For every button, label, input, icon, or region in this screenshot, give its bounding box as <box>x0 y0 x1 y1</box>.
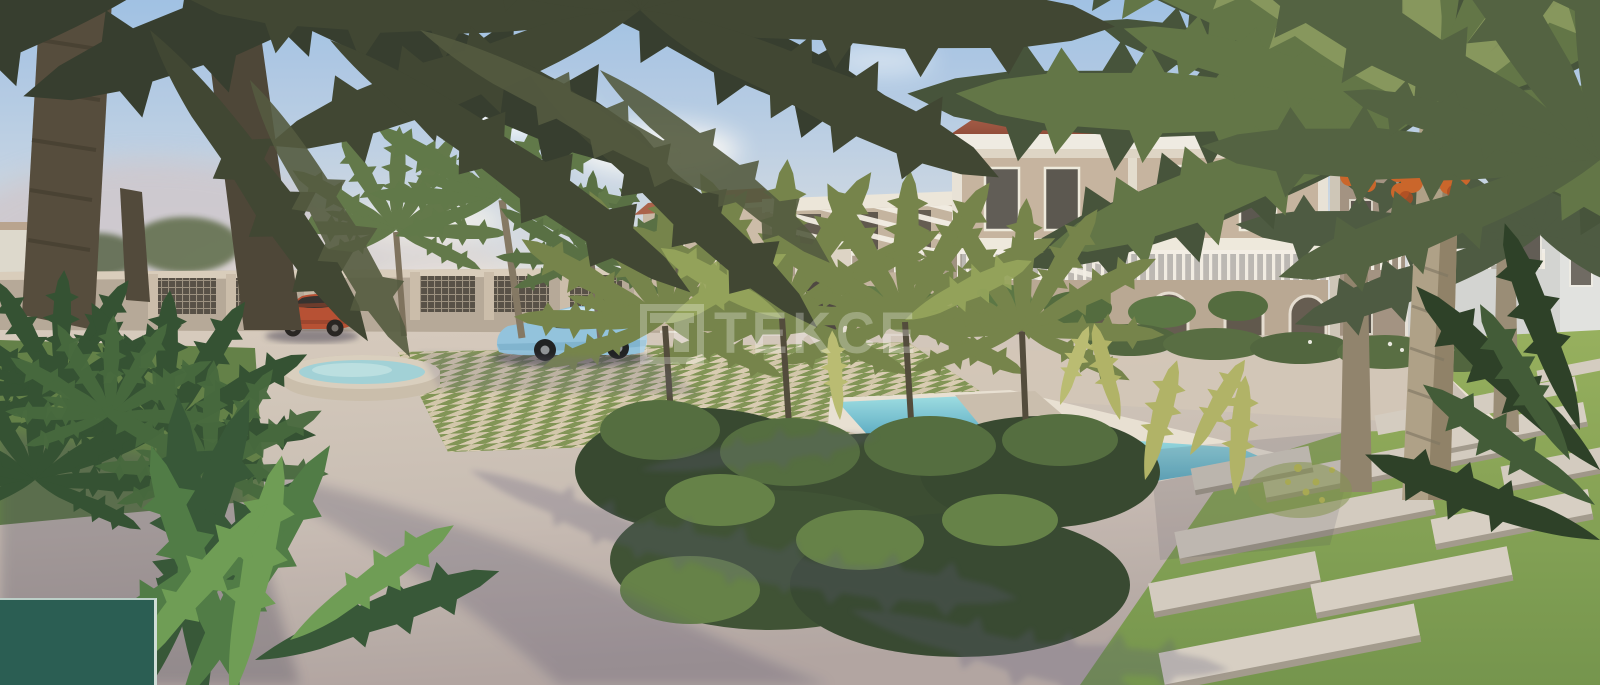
brand-corner-block <box>0 598 157 685</box>
haze-overlay <box>0 0 1600 685</box>
scene-canvas <box>0 0 1600 685</box>
render-image: TEKCE <box>0 0 1600 685</box>
